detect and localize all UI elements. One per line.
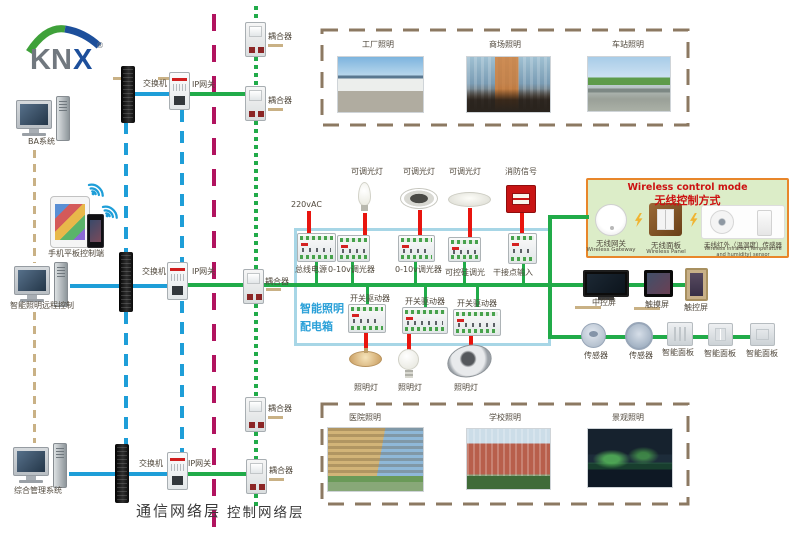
school-lighting-photo	[466, 428, 551, 490]
dimmer-module	[398, 235, 435, 262]
power-source-label: 220vAC	[291, 200, 322, 210]
coupler-label: 耦合器	[268, 404, 292, 414]
management-system-computer	[13, 443, 67, 490]
mall-lighting-photo	[466, 56, 551, 113]
monitor	[13, 447, 49, 476]
switch-label: 交换机	[142, 267, 166, 277]
factory-lighting-label: 工厂照明	[362, 40, 394, 50]
knx-bus-line	[190, 92, 248, 96]
touch-screen	[644, 270, 673, 297]
knx-logo-kn: KN	[30, 44, 72, 74]
coupler-label: 耦合器	[265, 277, 289, 287]
lan-backbone-line	[124, 312, 128, 445]
wireless-sensor-group	[701, 205, 785, 239]
knx-bus-trunk-line	[548, 215, 552, 339]
ip-gateway	[167, 262, 188, 300]
dimmer-module	[337, 235, 370, 262]
knx-system-diagram: KN X ®	[0, 0, 800, 536]
tan-tick	[266, 288, 281, 291]
knx-logo: KN X ®	[22, 20, 106, 74]
tan-tick	[269, 478, 284, 481]
switch-actuator-module	[348, 304, 386, 333]
distribution-box-title-line2: 配电箱	[300, 318, 344, 336]
downlight	[400, 188, 438, 209]
landscape-lighting-label: 景观照明	[612, 413, 644, 423]
network-switch	[119, 252, 133, 312]
dimmer-label: 0-10v调光器	[328, 265, 375, 275]
station-lighting-photo	[587, 56, 671, 112]
lan-backbone-line	[180, 110, 184, 263]
switch-actuator-label: 开关驱动器	[350, 294, 390, 304]
line-coupler	[246, 459, 267, 494]
switch-actuator-module	[402, 307, 448, 334]
smart-panel-label: 智能面板	[662, 348, 694, 358]
lighting-lamp-label: 照明灯	[454, 383, 478, 393]
mall-lighting-label: 商场照明	[489, 40, 521, 50]
communication-layer-label: 通信网络层	[136, 500, 221, 521]
line-coupler	[245, 397, 266, 432]
fire-signal-label: 消防信号	[505, 167, 537, 177]
gateway-label: IP网关	[192, 80, 215, 90]
dry-contact-module	[508, 233, 537, 264]
monitor	[14, 266, 50, 295]
lighting-lamp-label: 照明灯	[354, 383, 378, 393]
wireless-gateway-label-en: Wireless Gateway	[583, 247, 639, 253]
light-bulb	[398, 349, 419, 370]
central-screen-label: 中控屏	[592, 298, 616, 308]
coupler-label: 耦合器	[269, 466, 293, 476]
dimmable-light-label: 可调光灯	[403, 167, 435, 177]
touch-screen-label: 触摸屏	[645, 300, 669, 310]
wireless-gateway-device	[595, 204, 627, 236]
candle-bulb	[358, 182, 371, 206]
mobile-control-label: 手机平板控制端	[48, 249, 104, 259]
network-switch	[121, 66, 135, 123]
wireless-title-zh: 无线控制方式	[586, 192, 789, 208]
ceiling-lamp	[349, 351, 382, 367]
sensor-label: 传感器	[584, 351, 608, 361]
power-line	[418, 210, 422, 238]
dimmable-light-label: 可调光灯	[449, 167, 481, 177]
power-line	[468, 208, 472, 238]
switch-label: 交换机	[139, 459, 163, 469]
management-link-line	[33, 312, 36, 443]
lan-line	[135, 92, 171, 96]
network-switch	[115, 444, 129, 503]
fire-alarm	[506, 185, 536, 213]
remote-control-label: 智能照明远程控制	[10, 301, 74, 311]
wireless-sensor-label-en: Wireless infrared (Temperature and humid…	[699, 247, 787, 259]
dimmer-label: 0-10v调光器	[395, 265, 442, 275]
control-layer-label: 控制网络层	[227, 501, 305, 521]
coupler-label: 耦合器	[268, 32, 292, 42]
switch-actuator-label: 开关驱动器	[405, 297, 445, 307]
scr-dimmer-label: 可控硅调光	[445, 268, 485, 278]
wireless-panel-label-en: Wireless Panel	[641, 249, 691, 255]
temp-humidity-sensor	[757, 210, 772, 236]
tablet-device	[50, 196, 90, 248]
tan-tick	[268, 44, 283, 47]
hospital-lighting-photo	[327, 427, 424, 492]
knx-line-coupler-bus	[254, 432, 258, 461]
highbay-lamp	[444, 340, 495, 382]
switch-actuator-module	[453, 309, 501, 336]
dimmable-light-label: 可调光灯	[351, 167, 383, 177]
wall-screen-label: 触控屏	[684, 303, 708, 313]
bus-power-module	[297, 233, 336, 262]
coupler-label: 耦合器	[268, 96, 292, 106]
knx-line-coupler-bus	[254, 304, 258, 399]
factory-lighting-photo	[337, 56, 424, 113]
central-control-screen	[583, 270, 629, 297]
dry-contact-label: 干接点输入	[493, 268, 533, 278]
knx-logo-x: X	[73, 44, 93, 74]
lan-backbone-line	[180, 301, 184, 453]
tan-tick	[268, 108, 283, 111]
management-link-line	[33, 150, 36, 263]
ip-gateway	[169, 72, 190, 110]
switch-actuator-label: 开关驱动器	[457, 299, 497, 309]
computer-tower	[53, 443, 67, 488]
line-coupler	[245, 86, 266, 121]
knx-bus-line	[188, 472, 248, 476]
station-lighting-label: 车站照明	[612, 40, 644, 50]
smart-panel-label: 智能面板	[704, 349, 736, 359]
knx-bus-line	[551, 215, 589, 219]
school-lighting-label: 学校照明	[489, 413, 521, 423]
scr-dimmer-module	[448, 237, 481, 262]
distribution-box-title: 智能照明 配电箱	[300, 300, 344, 336]
smart-panel-label: 智能面板	[746, 349, 778, 359]
ba-system-label: BA系统	[28, 137, 55, 147]
sensor-device	[625, 322, 653, 350]
panel-light	[448, 192, 491, 207]
wall-touch-screen	[685, 268, 708, 301]
distribution-box-title-line1: 智能照明	[300, 300, 344, 318]
knx-line-coupler-bus	[254, 121, 258, 271]
sensor-device	[581, 323, 606, 348]
management-system-label: 综合管理系统	[14, 486, 62, 496]
ip-gateway	[167, 452, 188, 490]
switch-label: 交换机	[143, 79, 167, 89]
sensor-label: 传感器	[629, 351, 653, 361]
hospital-lighting-label: 医院照明	[349, 413, 381, 423]
gateway-label: IP网关	[192, 267, 215, 277]
computer-tower	[56, 96, 70, 141]
lan-backbone-line	[124, 122, 128, 253]
line-coupler	[243, 269, 264, 304]
knx-line-coupler-bus	[254, 57, 258, 87]
line-coupler	[245, 22, 266, 57]
smart-panel-device	[667, 322, 693, 346]
landscape-lighting-photo	[587, 428, 673, 488]
infrared-sensor	[710, 210, 734, 234]
ba-system-computer	[16, 96, 70, 143]
lighting-lamp-label: 照明灯	[398, 383, 422, 393]
smart-panel-device	[750, 323, 775, 346]
phone-screen	[90, 220, 101, 242]
monitor	[16, 100, 52, 129]
gateway-label: IP网关	[188, 459, 211, 469]
bus-power-label: 总线电源	[295, 265, 327, 275]
tan-tick	[268, 416, 283, 419]
tablet-screen	[55, 204, 85, 240]
registered-mark: ®	[96, 41, 104, 50]
smart-panel-device	[708, 323, 733, 346]
